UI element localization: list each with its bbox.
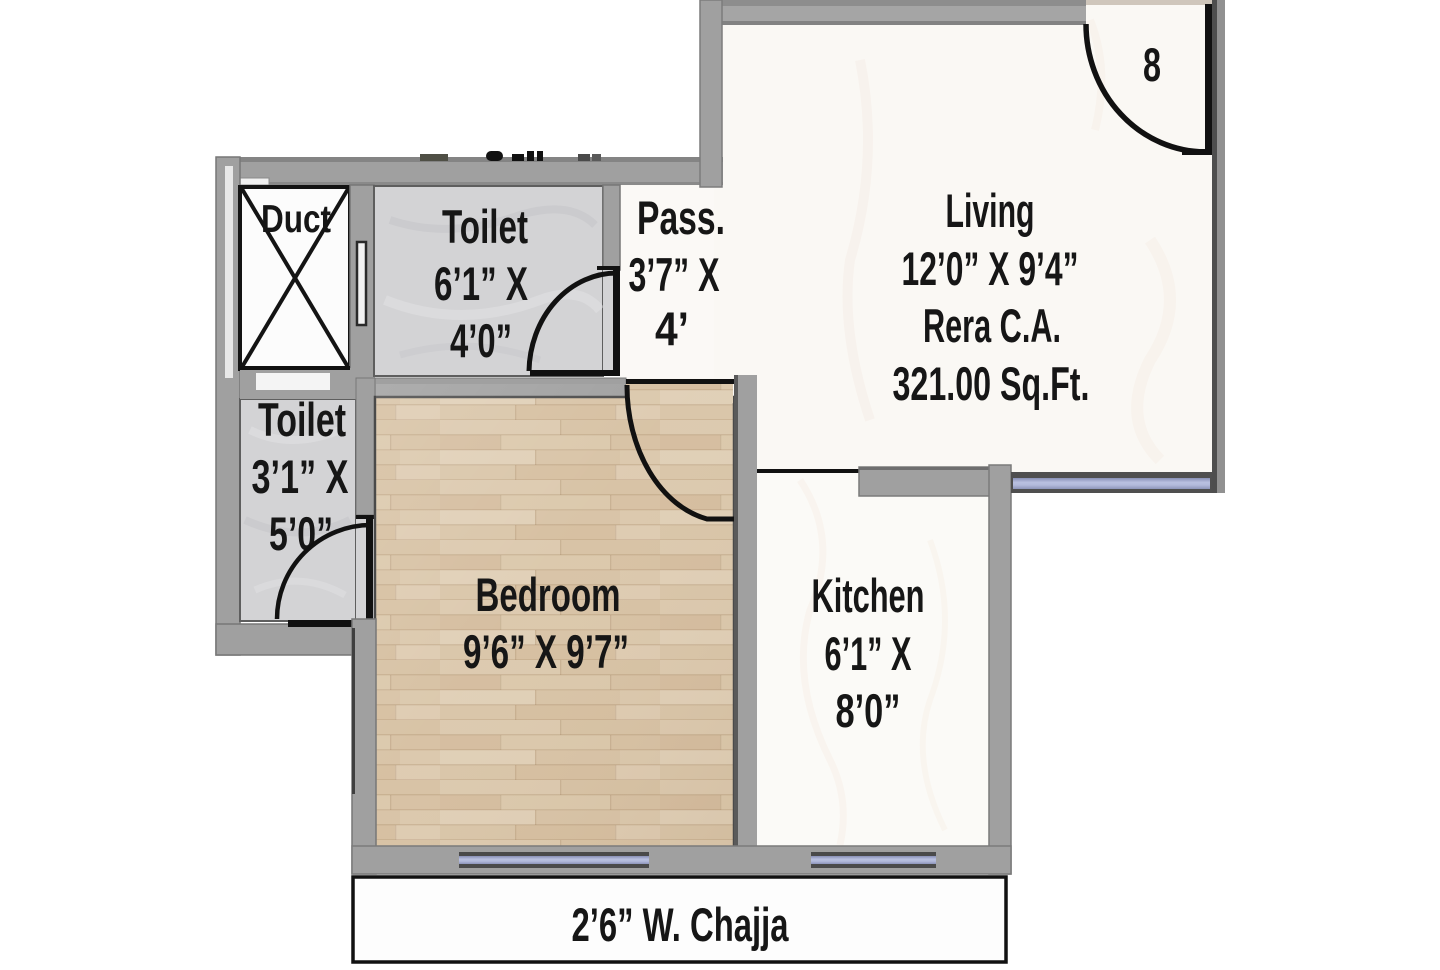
- svg-text:8’0”: 8’0”: [836, 684, 901, 737]
- svg-text:2’6” W. Chajja: 2’6” W. Chajja: [572, 898, 790, 951]
- svg-text:Bedroom: Bedroom: [476, 568, 621, 621]
- svg-text:Pass.: Pass.: [637, 191, 725, 244]
- svg-text:Rera C.A.: Rera C.A.: [923, 299, 1061, 352]
- svg-text:6’1” X: 6’1” X: [825, 627, 912, 680]
- svg-text:Living: Living: [946, 184, 1035, 237]
- svg-text:12’0” X 9’4”: 12’0” X 9’4”: [902, 242, 1079, 295]
- svg-text:321.00 Sq.Ft.: 321.00 Sq.Ft.: [893, 357, 1090, 410]
- svg-text:4’0”: 4’0”: [450, 314, 512, 367]
- svg-text:9’6” X 9’7”: 9’6” X 9’7”: [463, 625, 629, 678]
- svg-text:8: 8: [1143, 38, 1161, 91]
- svg-text:Toilet: Toilet: [442, 200, 528, 253]
- svg-text:5’0”: 5’0”: [269, 507, 333, 560]
- svg-text:3’1” X: 3’1” X: [252, 450, 349, 503]
- svg-text:4’: 4’: [655, 302, 689, 355]
- svg-text:6’1” X: 6’1” X: [434, 257, 528, 310]
- svg-text:Duct: Duct: [261, 198, 331, 241]
- svg-text:Toilet: Toilet: [258, 393, 346, 446]
- svg-text:Kitchen: Kitchen: [812, 569, 925, 622]
- svg-text:3’7” X: 3’7” X: [629, 248, 720, 301]
